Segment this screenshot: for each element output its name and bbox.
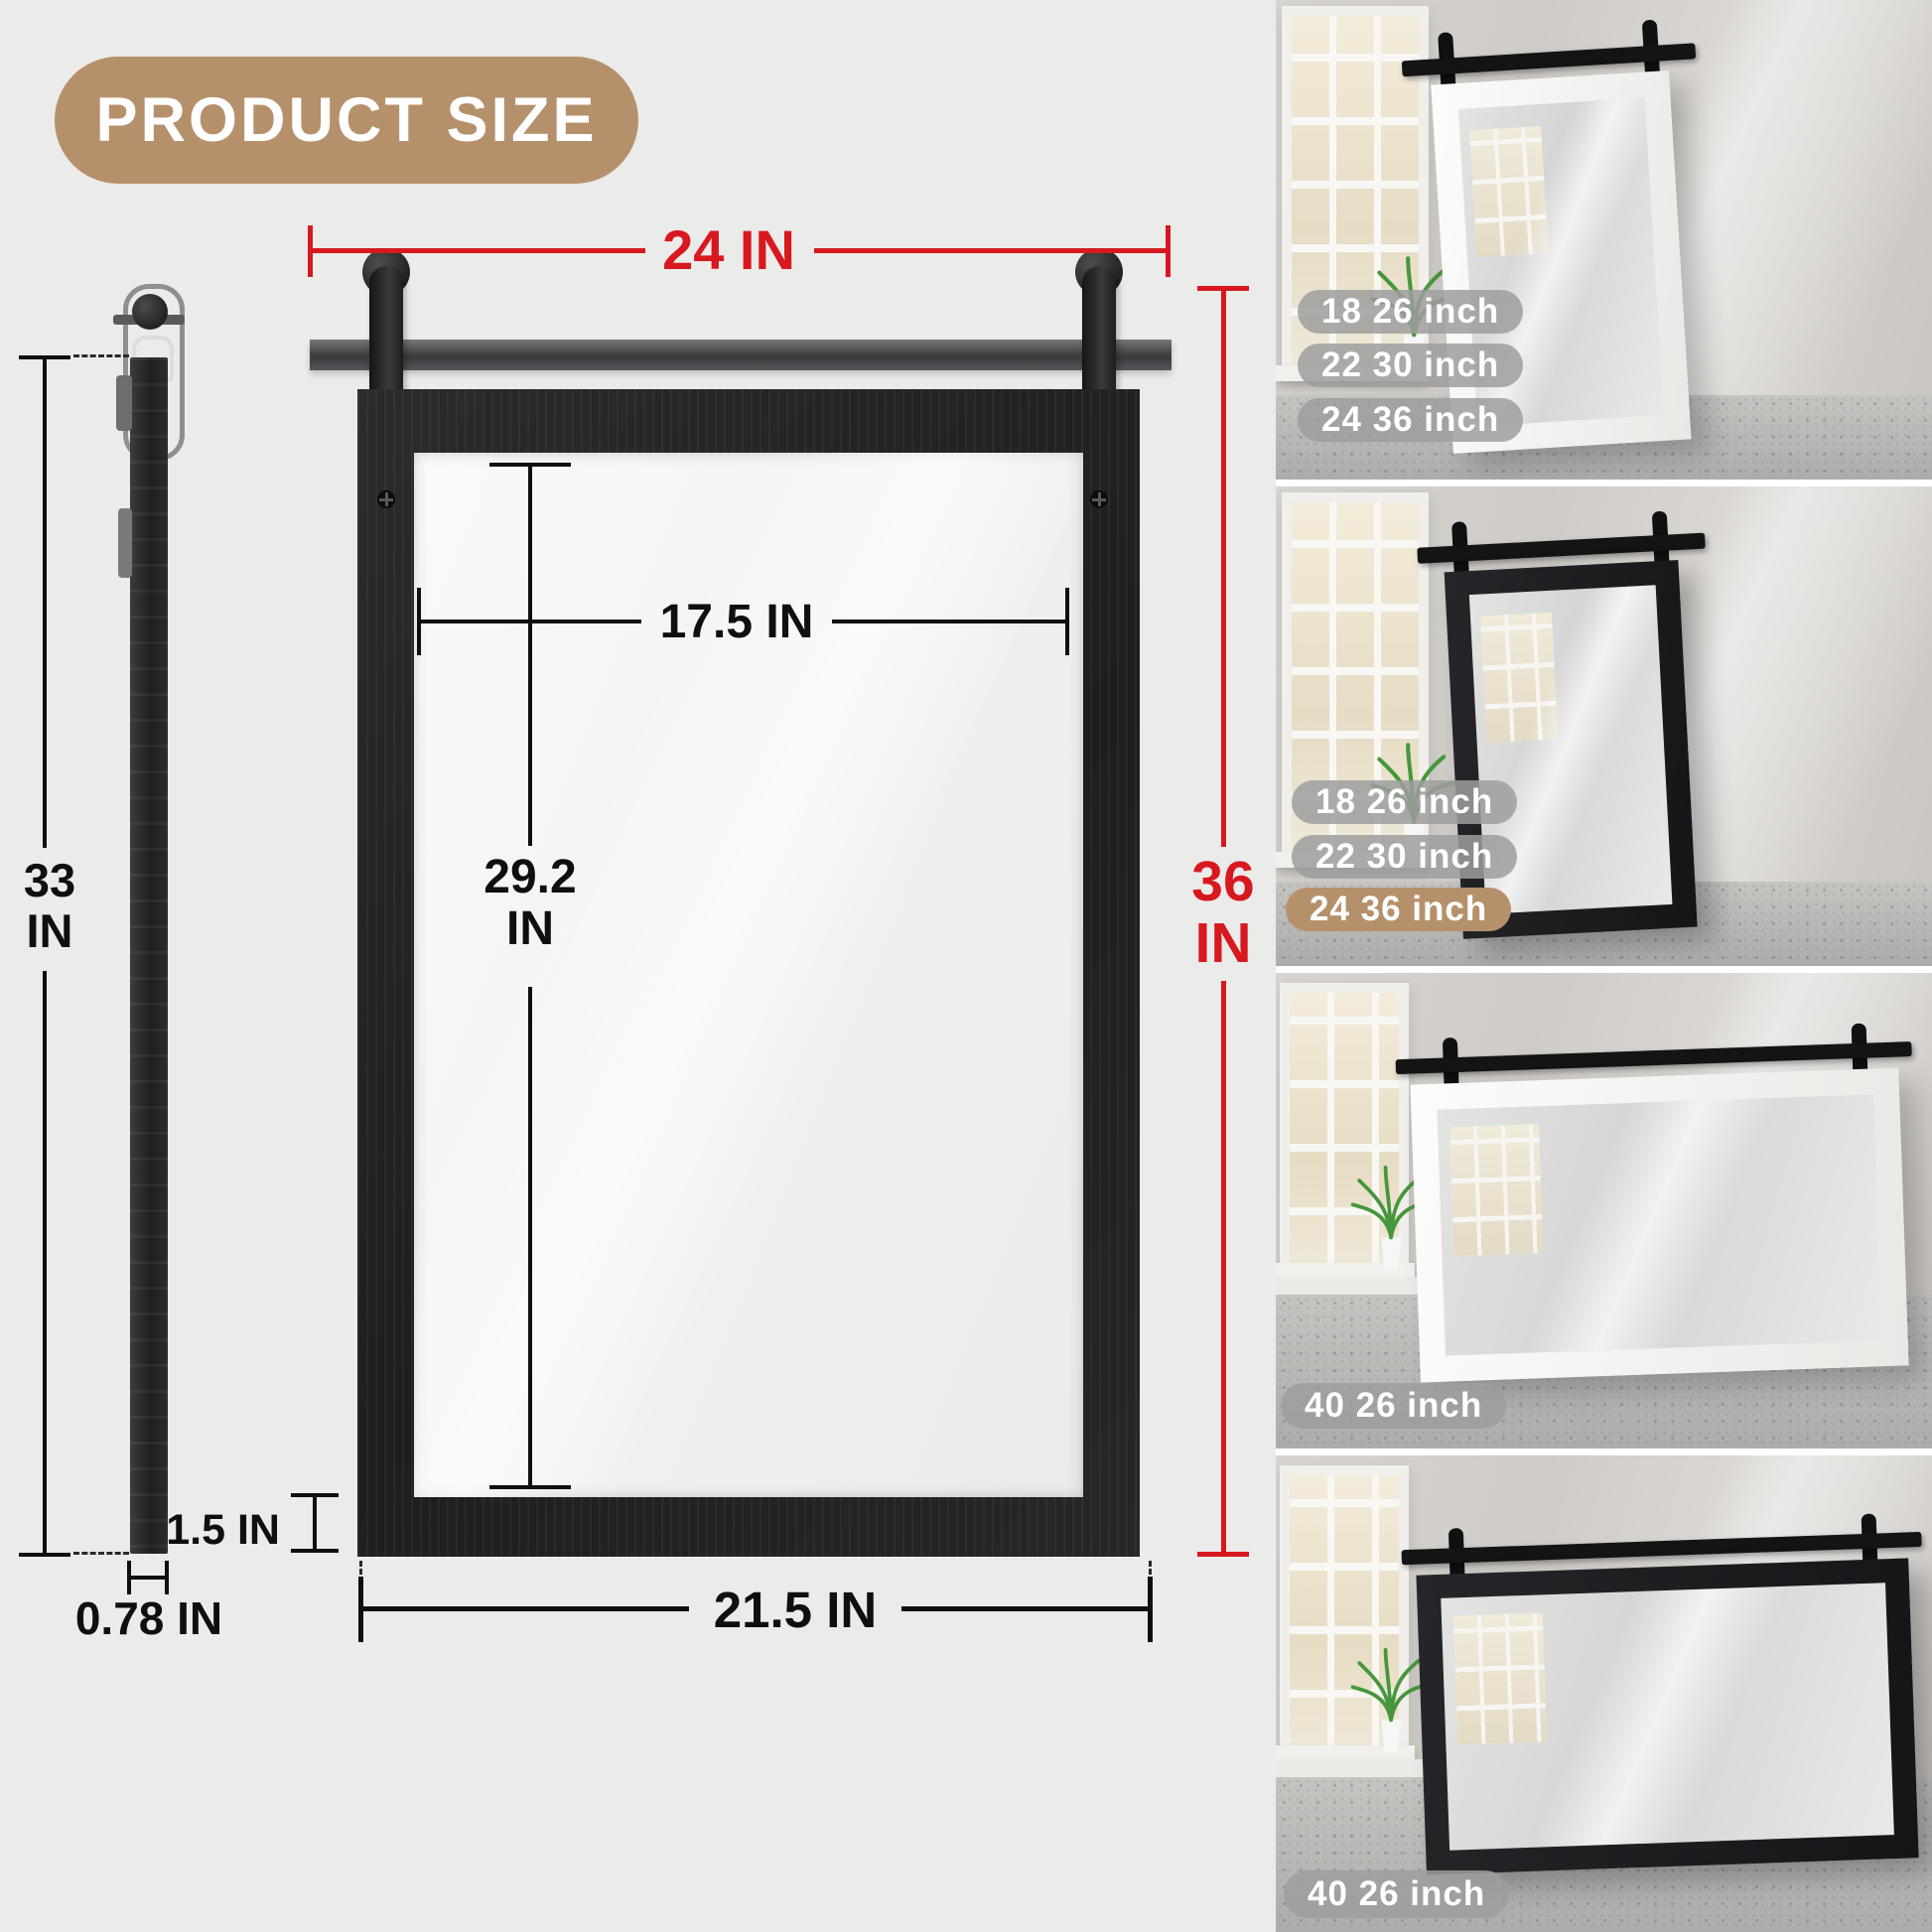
product-size-infographic: PRODUCT SIZE 33 IN 0.78 IN [0, 0, 1932, 1932]
size-option-pill: 22 30 inch [1292, 835, 1517, 879]
mirror-frame [1445, 560, 1698, 939]
side-depth-label: 0.78 IN [38, 1594, 260, 1644]
product-photo-white-portrait: 18 26 inch 22 30 inch 24 36 inch [1276, 0, 1932, 480]
size-option-pill: 40 26 inch [1281, 1383, 1506, 1429]
side-mirror-edge [130, 357, 168, 1554]
mirror-frame [1410, 1067, 1908, 1382]
mirror-frame [1431, 70, 1691, 454]
side-height-label: 33 IN [0, 856, 99, 957]
barn-door-rail-icon [310, 340, 1172, 370]
mirror-frame [357, 389, 1140, 1557]
product-photo-column: 18 26 inch 22 30 inch 24 36 inch [1276, 0, 1932, 1932]
side-clip-icon [116, 375, 132, 431]
product-photo-black-landscape: 40 26 inch [1276, 1455, 1932, 1932]
size-option-pill: 24 36 inch [1298, 398, 1523, 442]
overall-height-label: 36 IN [1168, 852, 1279, 974]
leaning-mirror [1409, 1023, 1909, 1397]
size-option-pill-selected: 24 36 inch [1286, 888, 1511, 931]
page-title-badge: PRODUCT SIZE [55, 57, 638, 184]
leaning-mirror [1428, 19, 1692, 460]
overall-width-label: 24 IN [645, 220, 812, 280]
leaning-mirror [1415, 1512, 1919, 1888]
bottom-width-label: 21.5 IN [689, 1583, 901, 1637]
mirror-glass [1437, 1094, 1881, 1355]
product-photo-white-landscape: 40 26 inch [1276, 973, 1932, 1449]
product-photo-black-portrait: 18 26 inch 22 30 inch 24 36 inch [1276, 486, 1932, 966]
side-clip-icon [118, 508, 132, 578]
leaning-mirror [1442, 510, 1698, 945]
inner-width-label: 17.5 IN [641, 597, 832, 648]
mirror-glass [1441, 1583, 1894, 1850]
screw-icon [1090, 490, 1108, 508]
screw-icon [377, 490, 395, 508]
side-roller-wheel-icon [132, 294, 168, 330]
size-option-pill: 22 30 inch [1298, 344, 1523, 387]
page-title: PRODUCT SIZE [95, 84, 597, 156]
size-option-pill: 18 26 inch [1298, 290, 1523, 334]
mirror-frame [1416, 1558, 1918, 1874]
size-option-pill: 18 26 inch [1292, 780, 1517, 824]
inner-height-label: 29.2 IN [459, 852, 602, 955]
size-option-pill: 40 26 inch [1284, 1870, 1509, 1918]
frame-thickness-label: 1.5 IN [151, 1507, 280, 1553]
